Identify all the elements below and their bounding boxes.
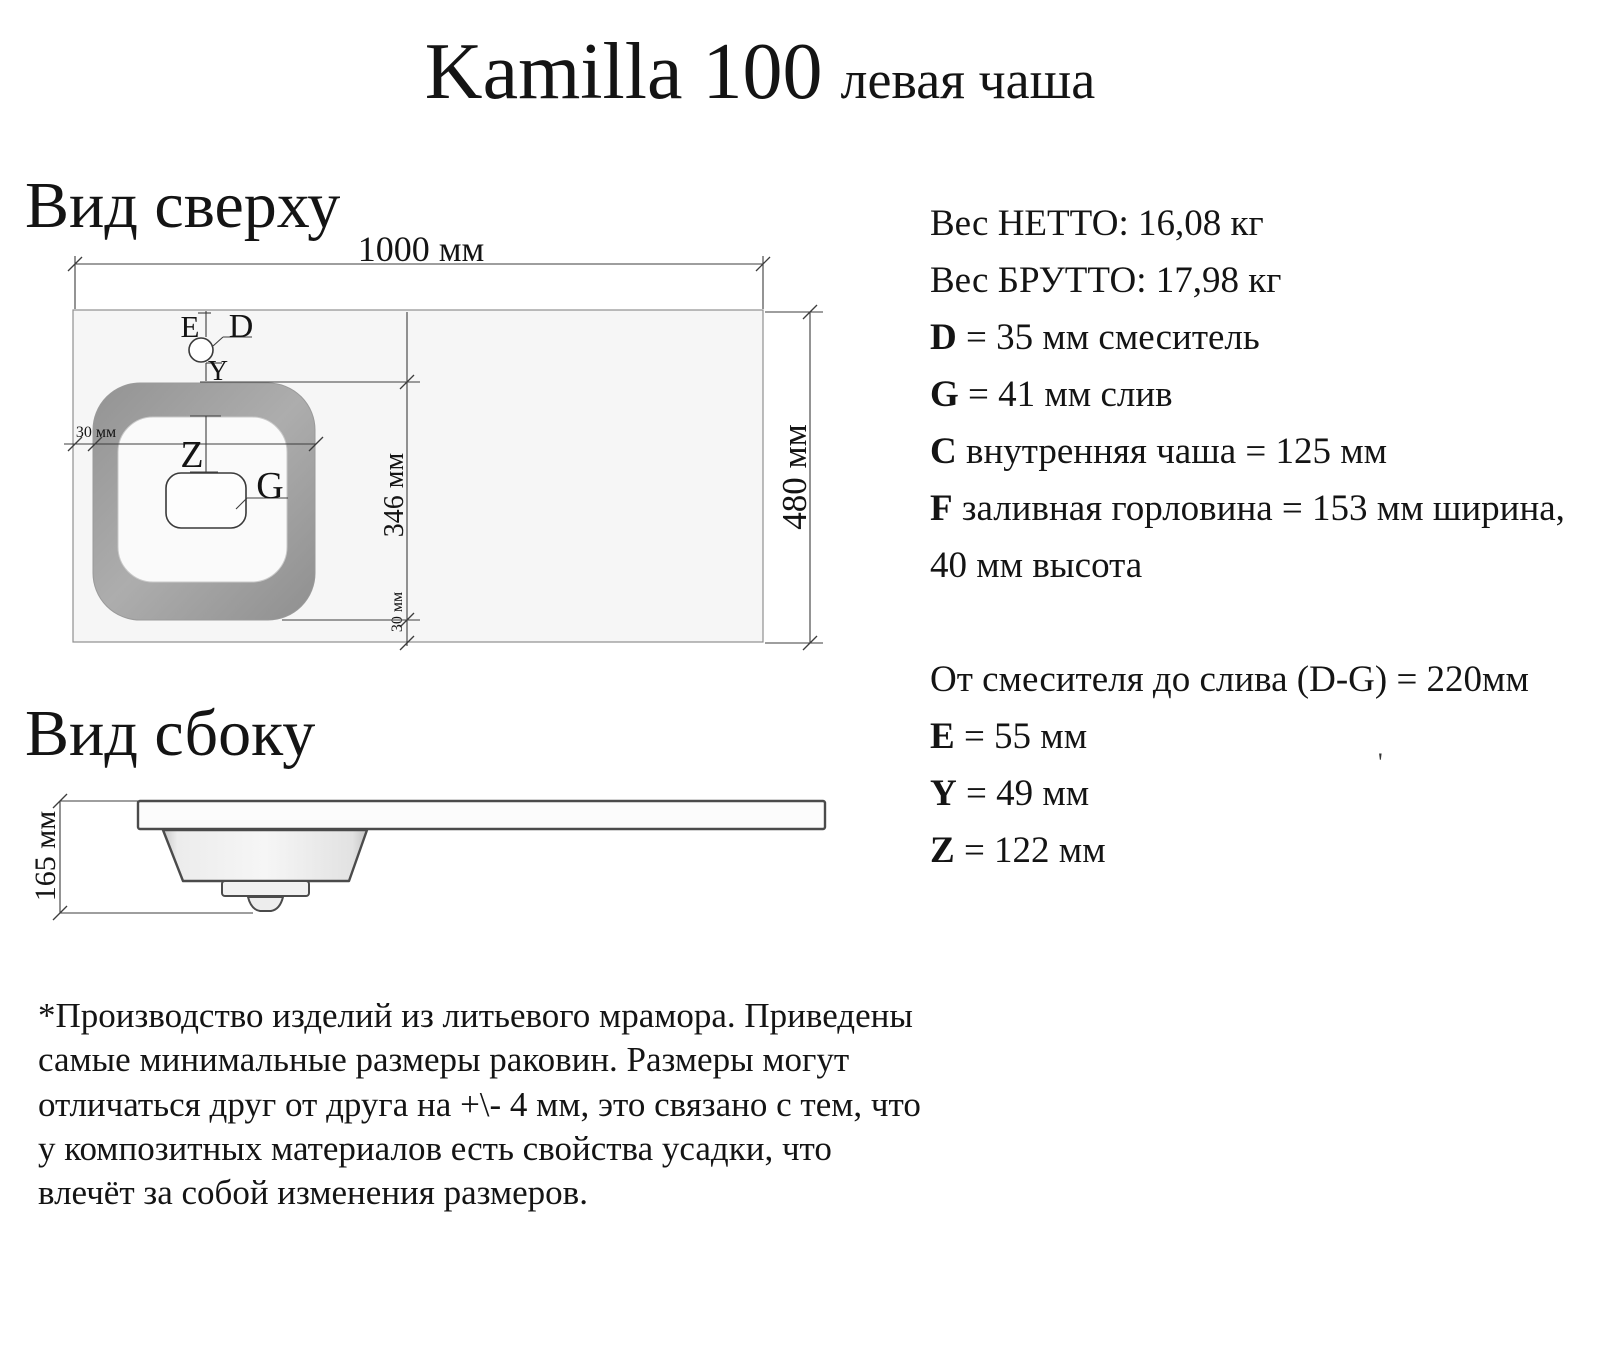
footnote-line: у композитных материалов есть свойства у…	[38, 1127, 921, 1171]
marker-d-label: D	[229, 308, 254, 345]
spec-line-f-height: 40 мм высота	[930, 537, 1565, 594]
side-drain-stub	[248, 897, 283, 911]
spec-group-offsets: От смесителя до слива (D-G) = 220мм E = …	[930, 651, 1565, 879]
side-bowl-profile	[163, 830, 367, 881]
side-view-heading: Вид сбоку	[25, 701, 315, 767]
spec-line-f: F заливная горловина = 153 мм ширина,	[930, 480, 1565, 537]
top-view-heading: Вид сверху	[25, 173, 340, 239]
dim-depth-label: 480 мм	[775, 424, 814, 530]
footnote-line: *Производство изделий из литьевого мрамо…	[38, 994, 921, 1038]
side-view-drawing: 165 мм	[29, 794, 825, 920]
marker-y-label: Y	[208, 356, 228, 387]
dim-height-label: 165 мм	[29, 811, 62, 901]
spec-line-dg-distance: От смесителя до слива (D-G) = 220мм	[930, 651, 1565, 708]
footnote-line: отличаться друг от друга на +\- 4 мм, эт…	[38, 1083, 921, 1127]
footnote: *Производство изделий из литьевого мрамо…	[38, 994, 921, 1215]
dim-edge-bottom-label: 30 мм	[389, 592, 406, 632]
footnote-line: влечёт за собой изменения размеров.	[38, 1171, 921, 1215]
side-countertop-slab	[138, 801, 825, 829]
drain-hole	[166, 473, 246, 528]
stray-mark: '	[1378, 750, 1383, 776]
footnote-line: самые минимальные размеры раковин. Разме…	[38, 1038, 921, 1082]
dim-edge-left-label: 30 мм	[76, 424, 116, 441]
marker-e-label: E	[181, 309, 200, 344]
top-view-drawing: 1000 мм 480 мм 346 мм 30 мм 30 мм E D Y …	[64, 229, 823, 650]
marker-g-label: G	[256, 465, 283, 507]
spec-line-d: D = 35 мм смеситель	[930, 309, 1565, 366]
spec-line-net-weight: Вес НЕТТО: 16,08 кг	[930, 195, 1565, 252]
product-model: Kamilla 100	[425, 28, 823, 116]
side-drain-flange	[222, 881, 309, 896]
page-title: Kamilla 100левая чаша	[0, 32, 1520, 134]
dim-width-label: 1000 мм	[358, 229, 485, 269]
spec-line-g: G = 41 мм слив	[930, 366, 1565, 423]
spec-group-weights: Вес НЕТТО: 16,08 кг Вес БРУТТО: 17,98 кг…	[930, 195, 1565, 594]
spec-line-c: C внутренняя чаша = 125 мм	[930, 423, 1565, 480]
spec-panel: Вес НЕТТО: 16,08 кг Вес БРУТТО: 17,98 кг…	[930, 195, 1565, 879]
spec-line-gross-weight: Вес БРУТТО: 17,98 кг	[930, 252, 1565, 309]
dim-bowl-depth-label: 346 мм	[379, 453, 410, 538]
spec-line-y: Y = 49 мм	[930, 765, 1565, 822]
marker-z-label: Z	[180, 434, 203, 476]
product-variant: левая чаша	[841, 50, 1096, 110]
spec-line-e: E = 55 мм	[930, 708, 1565, 765]
spec-line-z: Z = 122 мм	[930, 822, 1565, 879]
